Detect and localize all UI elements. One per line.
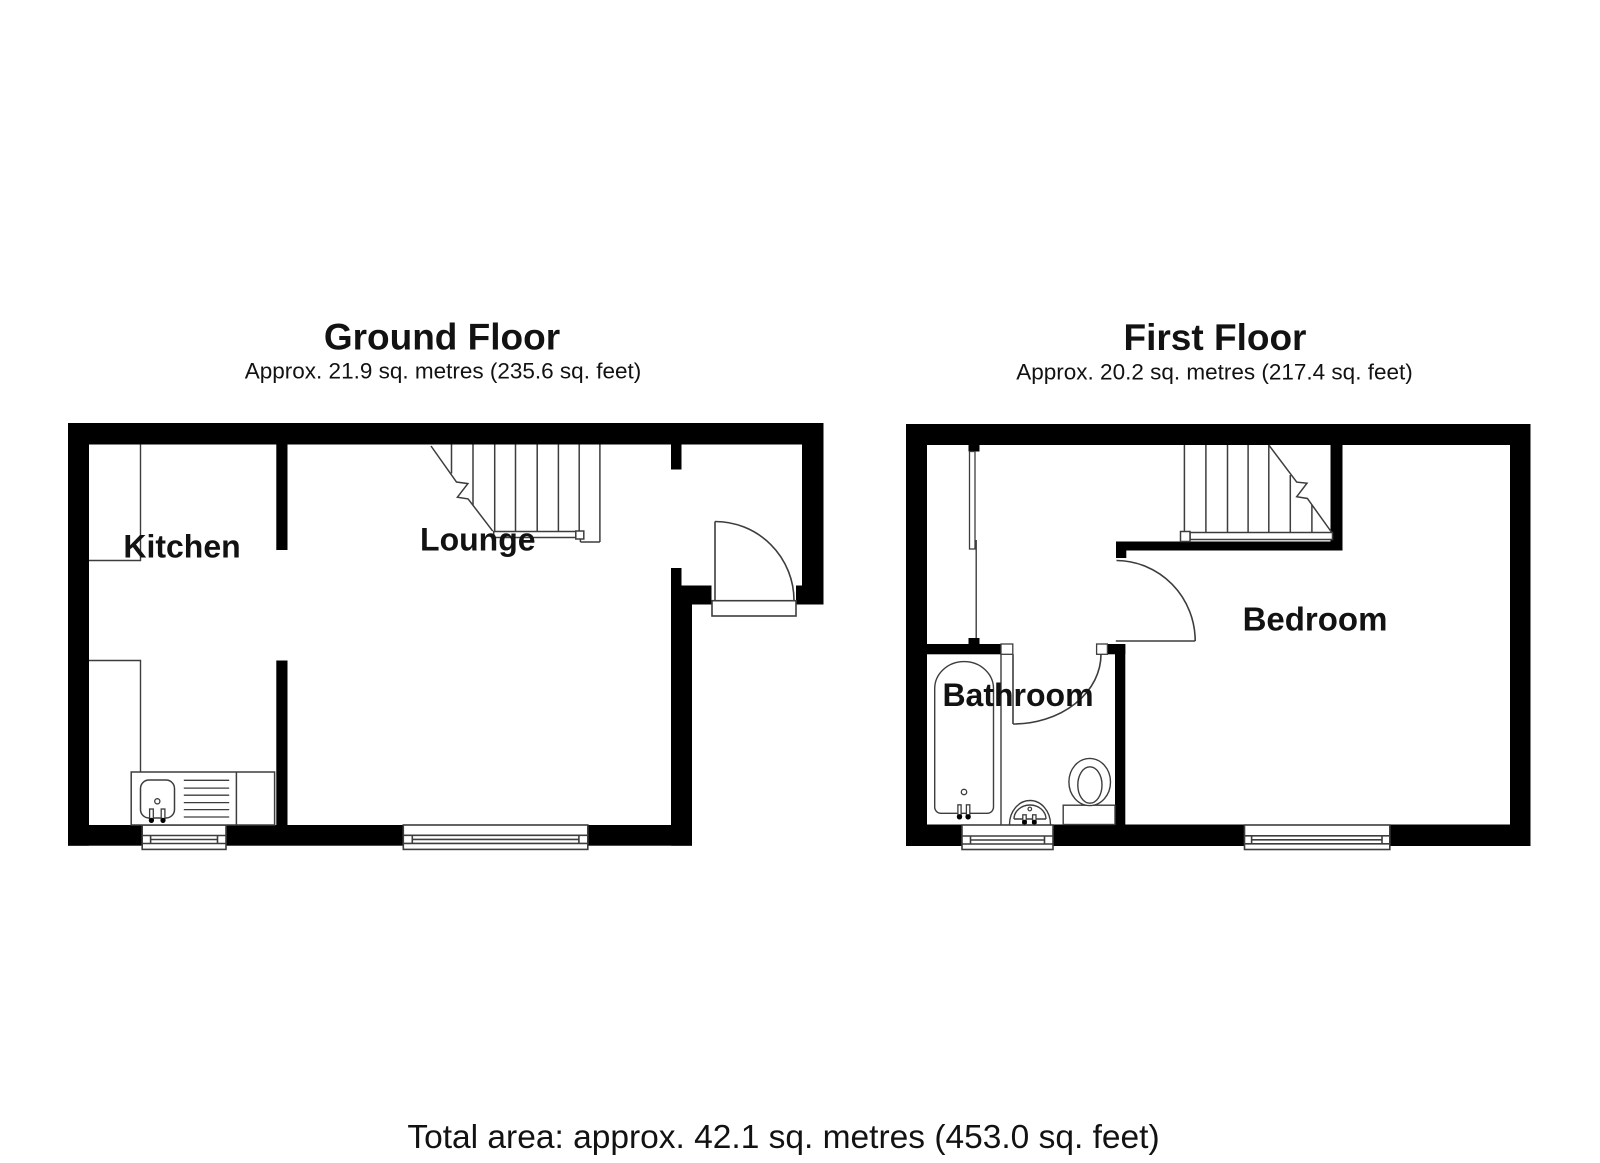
svg-text:Approx. 20.2 sq. metres (217.4: Approx. 20.2 sq. metres (217.4 sq. feet) [1016,360,1412,385]
svg-text:Lounge: Lounge [420,522,536,558]
svg-text:Kitchen: Kitchen [123,529,240,565]
svg-text:First Floor: First Floor [1124,317,1307,358]
svg-text:Bathroom: Bathroom [942,677,1093,713]
svg-text:Bedroom: Bedroom [1243,601,1388,638]
svg-text:Ground Floor: Ground Floor [324,317,560,358]
svg-text:Approx. 21.9 sq. metres (235.6: Approx. 21.9 sq. metres (235.6 sq. feet) [245,359,641,384]
svg-text:Total area: approx. 42.1 sq. m: Total area: approx. 42.1 sq. metres (453… [407,1119,1159,1156]
